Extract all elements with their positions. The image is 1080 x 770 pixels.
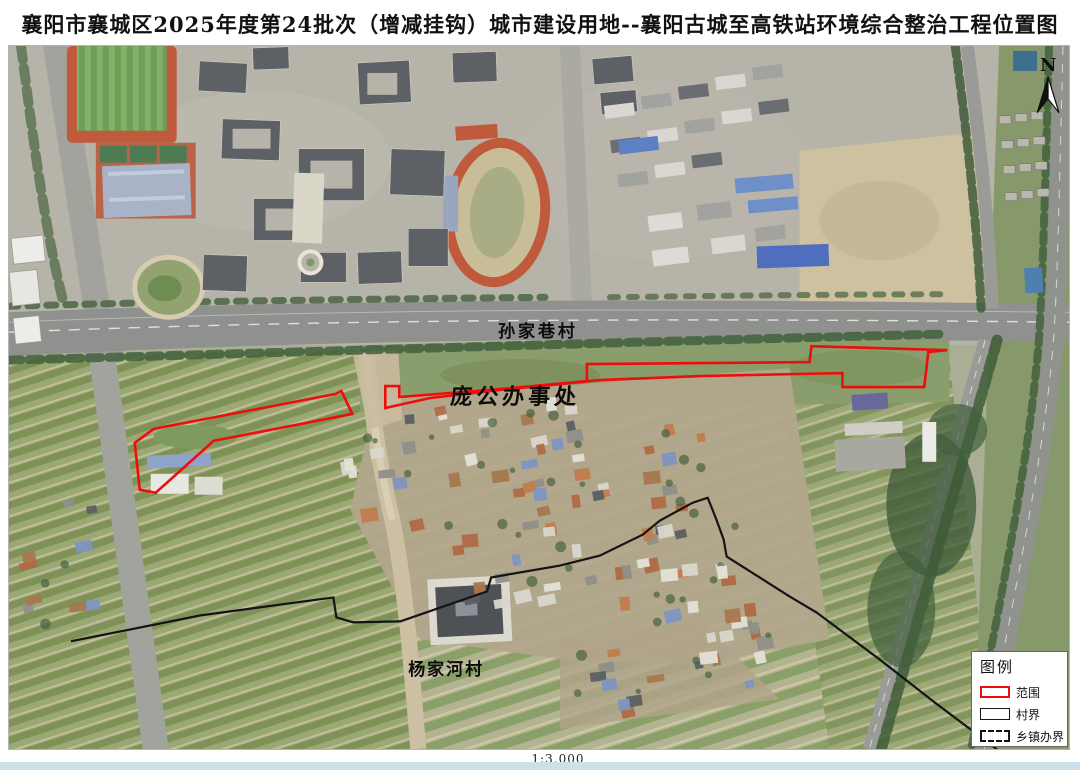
- legend-item-village-boundary: 村界: [980, 703, 1067, 725]
- legend-title: 图例: [980, 656, 1067, 677]
- township-boundary-swatch: [980, 730, 1010, 742]
- map-image: 孙家巷村 庞公办事处 杨家河村 N 图例 范围 村界 乡镇办界: [8, 45, 1070, 750]
- satellite-canvas: 孙家巷村 庞公办事处 杨家河村 N: [9, 46, 1069, 749]
- map-title: 襄阳市襄城区2025年度第24批次（增减挂钩）城市建设用地--襄阳古城至高铁站环…: [0, 8, 1080, 42]
- legend-item-label: 村界: [1016, 706, 1040, 723]
- range-swatch: [980, 686, 1010, 698]
- horizontal-scrollbar[interactable]: [0, 762, 1080, 770]
- legend-item-label: 范围: [1016, 684, 1040, 701]
- label-sunjiaxiang-village: 孙家巷村: [498, 321, 578, 341]
- legend: 图例 范围 村界 乡镇办界: [971, 651, 1068, 747]
- legend-item-township-boundary: 乡镇办界: [980, 725, 1067, 747]
- village-boundary-swatch: [980, 708, 1010, 720]
- label-panggong-office: 庞公办事处: [449, 384, 581, 410]
- page: 襄阳市襄城区2025年度第24批次（增减挂钩）城市建设用地--襄阳古城至高铁站环…: [0, 0, 1080, 770]
- legend-item-range: 范围: [980, 681, 1067, 703]
- north-arrow-label: N: [1040, 55, 1056, 76]
- label-yangjiahe-village: 杨家河村: [408, 659, 484, 679]
- legend-item-label: 乡镇办界: [1016, 728, 1064, 745]
